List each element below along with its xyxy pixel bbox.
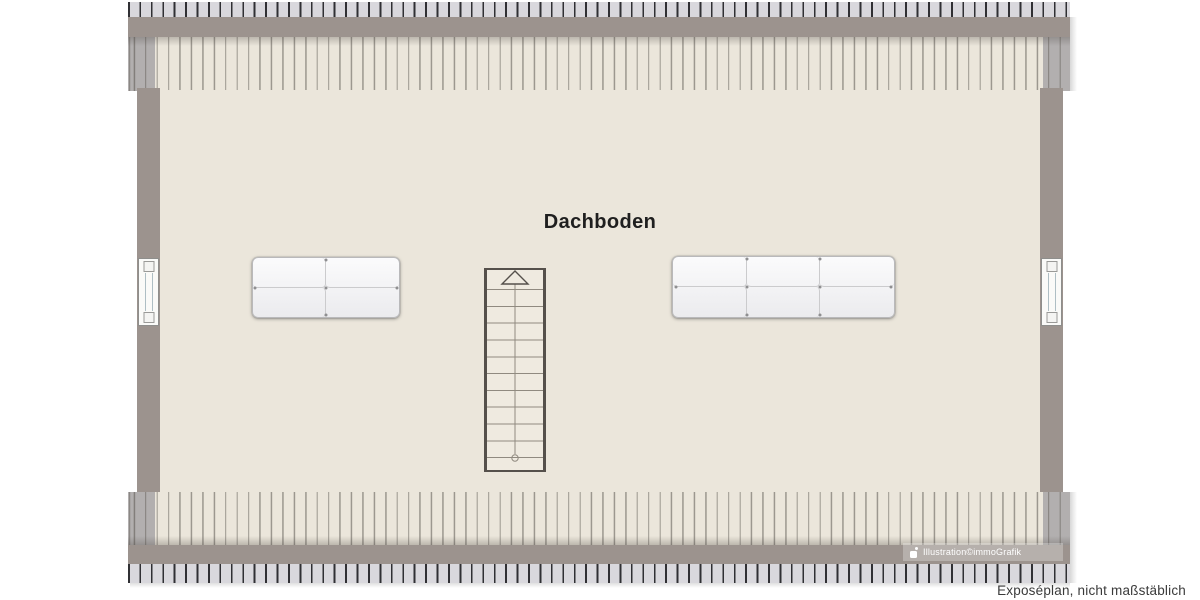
shadow-bottom [130,583,1070,588]
floor-plan-canvas: Dachboden Illustration©immoGrafik Exposé… [0,0,1200,600]
window-frame-post [1046,261,1057,272]
mattress-section [820,257,894,287]
tuft-dot [745,258,748,261]
mattress-section [747,257,821,287]
tuft-dot [819,258,822,261]
tuft-dot [325,286,328,289]
tuft-dot [395,286,398,289]
window-glazing [1048,273,1056,311]
mattress-section [253,288,326,318]
staircase [484,268,546,472]
shadow-right-bottom [1070,492,1077,583]
window-left [138,258,159,326]
mattress-right [672,256,895,318]
immografik-logo-icon [910,547,919,558]
sloped-ceiling-bottom [128,492,1070,545]
roof-rafters-bottom [128,564,1070,583]
tuft-dot [745,313,748,316]
roof-rafters-top [128,2,1070,17]
mattress-section [673,287,747,317]
mattress-section [747,287,821,317]
stair-direction-arrow [487,270,543,470]
window-frame-post [1046,312,1057,323]
sloped-ceiling-top [128,37,1070,91]
tuft-dot [819,313,822,316]
mattress-section [326,258,399,288]
window-frame-post [143,312,154,323]
mattress-section [820,287,894,317]
tuft-dot [325,313,328,316]
mattress-section [673,257,747,287]
watermark-bar: Illustration©immoGrafik [903,543,1063,561]
disclaimer-text: Exposéplan, nicht maßstäblich [997,583,1186,598]
window-frame-post [143,261,154,272]
window-glazing [145,273,153,311]
tuft-dot [819,286,822,289]
window-right [1041,258,1062,326]
tuft-dot [254,286,257,289]
shadow-right-top [1070,17,1077,91]
wall-top [128,17,1070,37]
watermark-text: Illustration©immoGrafik [923,547,1021,557]
mattress-section [253,258,326,288]
tuft-dot [889,286,892,289]
mattress-left [252,257,400,318]
room-label: Dachboden [544,211,657,234]
tuft-dot [675,286,678,289]
tuft-dot [745,286,748,289]
mattress-section [326,288,399,318]
tuft-dot [325,259,328,262]
